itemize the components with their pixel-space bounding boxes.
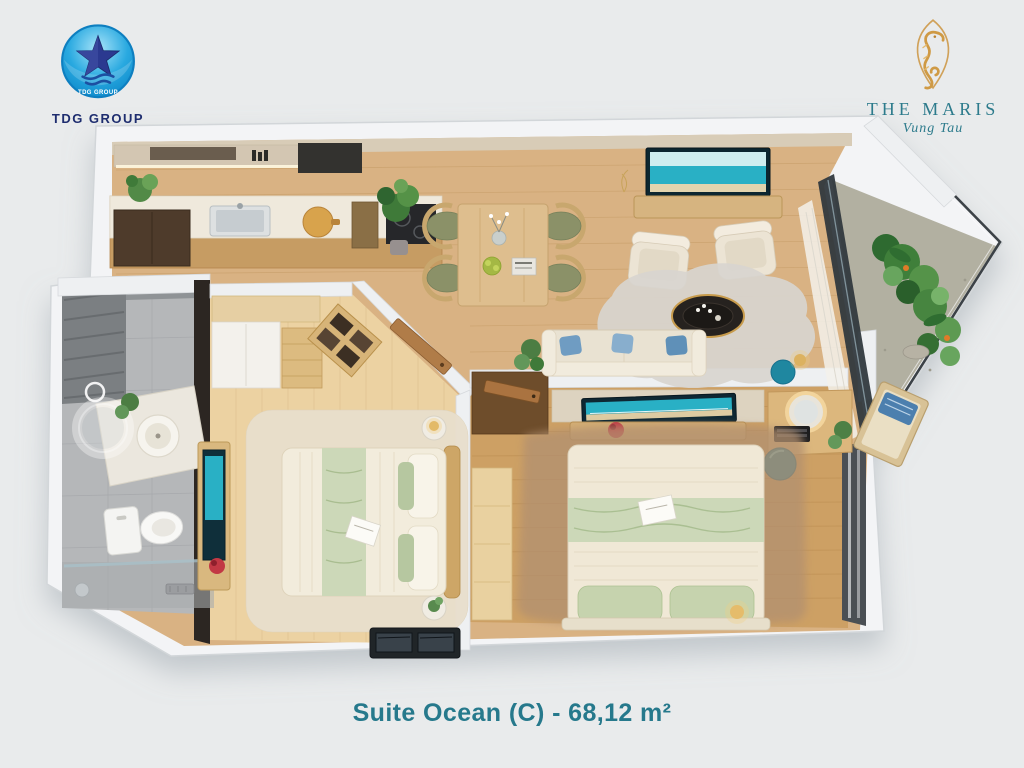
- tv-console: [634, 196, 782, 218]
- kitchen-dark-shelf: [150, 147, 236, 160]
- tdg-group-emblem-icon: TDG GROUP: [57, 22, 139, 104]
- built-in-oven: [352, 202, 378, 248]
- bedside-gold-lamp: [725, 600, 749, 624]
- maris-location-script: Vung Tau: [848, 121, 1018, 137]
- tdg-group-logo: TDG GROUP TDG GROUP: [42, 22, 154, 126]
- bedroom2-entry-door: [472, 372, 548, 434]
- bedroom1-bed: [282, 446, 460, 598]
- green-pillow: [398, 534, 414, 582]
- kitchen-sink: [210, 203, 270, 236]
- green-pillow: [398, 462, 414, 510]
- dining-table: [458, 204, 548, 306]
- gold-table-lamp: [790, 350, 810, 370]
- nightstand-with-plant: [422, 596, 446, 620]
- magazine: [512, 258, 536, 275]
- sofa: [542, 330, 706, 376]
- bedroom1-wardrobe: [212, 296, 322, 388]
- tdg-wordmark: TDG GROUP: [42, 111, 154, 126]
- living-tv: [646, 148, 770, 196]
- green-pillow: [578, 586, 662, 622]
- unit-caption: Suite Ocean (C) - 68,12 m²: [0, 699, 1024, 728]
- bedroom2-window-curtain: [842, 444, 866, 626]
- ac-louver-unit: [370, 628, 460, 658]
- maris-wordmark: THE MARIS: [848, 99, 1018, 120]
- floor-plan-render: TDG GROUP TDG GROUP THE MARIS Vung Tau S…: [0, 0, 1024, 768]
- tdg-circle-text: TDG GROUP: [78, 90, 118, 96]
- nightstand-with-lamp: [422, 416, 446, 440]
- shower-area: [62, 560, 214, 608]
- dining-area: [425, 204, 584, 306]
- range-hood: [298, 143, 362, 173]
- the-maris-logo: THE MARIS Vung Tau: [848, 16, 1018, 137]
- bedroom1-tv-stand: [198, 442, 230, 590]
- fruit-bowl: [483, 257, 501, 275]
- maris-seahorse-icon: [901, 16, 965, 92]
- bathroom-top-wall: [58, 274, 210, 296]
- vanity-sink: [137, 415, 179, 457]
- red-flowers: [209, 558, 225, 574]
- bedroom2-closet: [472, 468, 512, 620]
